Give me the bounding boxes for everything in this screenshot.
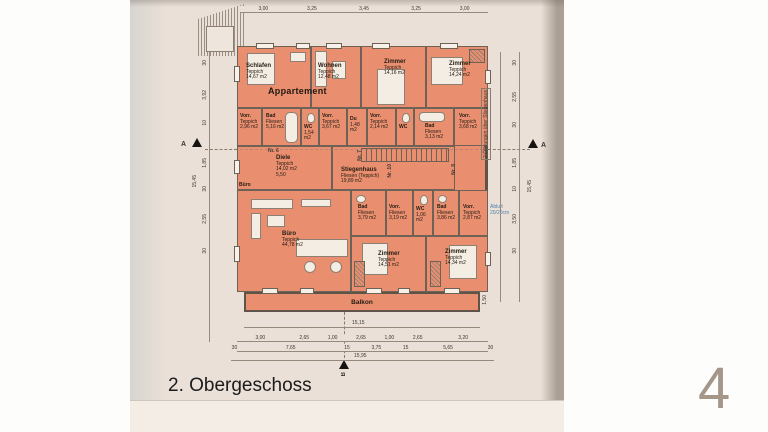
- closet-hatch: [354, 261, 365, 287]
- closet-hatch: [430, 261, 441, 287]
- window: [366, 288, 382, 294]
- door-number: Nr. 8: [452, 164, 457, 175]
- room-vorraum-5: Vorr. Fliesen 3,19 m2: [386, 190, 413, 236]
- room-area: 3,68 m2: [459, 125, 477, 131]
- dim-line-bottom-2: [237, 351, 488, 352]
- dim-value: 3,92: [203, 90, 208, 100]
- dim-line-right-outer: [519, 52, 520, 302]
- door-number: Nr. 10: [388, 164, 393, 178]
- room-area: 14,24 m2: [449, 73, 471, 79]
- room-vorraum-1: Vorr. Teppich 2,96 m2: [237, 108, 262, 146]
- scan-bottom-band: [130, 400, 564, 432]
- abluft-note: Abluft 20/20cm: [490, 205, 514, 216]
- window: [398, 288, 410, 294]
- section-marker-a-left: A: [181, 141, 186, 148]
- dim-bottom-total: 15,95: [352, 354, 369, 359]
- dim-value: 30: [513, 122, 518, 128]
- section-marker-a-right-icon: [528, 139, 538, 148]
- room-area: 2,96 m2: [240, 125, 258, 131]
- room-bad-1: Bad Fliesen 5,16 m2: [262, 108, 301, 146]
- room-area: 1,48 m2: [350, 123, 366, 134]
- room-bad-4: Bad Fliesen 3,86 m2: [433, 190, 459, 236]
- chair: [304, 261, 316, 273]
- room-area: 1,06 m2: [416, 213, 432, 224]
- dim-value: 3,75: [350, 345, 402, 351]
- dim-row-bottom-1: 3,00 2,65 1,00 2,65 1,00 2,65 3,20: [237, 335, 488, 341]
- sofa: [251, 213, 261, 239]
- balkon-label: Balkon: [351, 299, 373, 306]
- room-wc-3: WC 1,06 m2: [413, 190, 433, 236]
- sideboard: [301, 199, 331, 207]
- dim-value: 3,00: [237, 335, 284, 341]
- room-vorraum-2: Vorr. Teppich 3,67 m2: [319, 108, 347, 146]
- dim-line-right-inner: [500, 52, 501, 302]
- dim-value: 2,65: [397, 335, 438, 341]
- room-area: 44,78 m2: [282, 243, 303, 249]
- dim-value: 3,25: [391, 6, 442, 12]
- room-area: 3,19 m2: [389, 216, 407, 222]
- dim-value: 30: [203, 248, 208, 254]
- room-bad-3: Bad Fliesen 3,79 m2: [351, 190, 386, 236]
- dim-value: 30: [203, 186, 208, 192]
- dim-value: 10: [203, 120, 208, 126]
- room-schlafen: Schlafen Teppich 14,67 m2: [237, 46, 311, 108]
- window: [234, 160, 240, 174]
- room-area: 3,79 m2: [358, 216, 376, 222]
- dim-row-bottom-2: 30 7,65 15 3,75 15 5,65 30: [231, 345, 494, 351]
- section-marker-a-right: A: [541, 142, 546, 149]
- dim-balkon-width: 15,15: [350, 321, 367, 326]
- stairs: [361, 148, 449, 162]
- desk: [296, 239, 348, 257]
- dim-value: 3,50: [513, 214, 518, 224]
- room-vorraum-3: Vorr. Teppich 2,14 m2: [367, 108, 396, 146]
- window: [234, 246, 240, 262]
- dim-value: 30: [487, 345, 494, 351]
- dim-value: 7,65: [238, 345, 344, 351]
- window: [372, 43, 390, 49]
- room-area: 3,67 m2: [322, 125, 340, 131]
- dim-value: 2,65: [340, 335, 381, 341]
- room-area: 2,87 m2: [463, 216, 481, 222]
- dim-total: 15,45: [528, 180, 533, 193]
- balkon: Balkon: [244, 292, 480, 312]
- dim-line-bottom-total: [231, 360, 494, 361]
- sofa: [251, 199, 293, 209]
- window: [262, 288, 278, 294]
- room-area: 14,16 m2: [384, 71, 406, 77]
- room-zimmer-4: Zimmer Teppich 14,34 m2: [426, 236, 488, 292]
- window: [256, 43, 274, 49]
- coffee-table: [267, 215, 285, 227]
- roof-dormer: [206, 26, 234, 52]
- room-area: 14,34 m2: [445, 261, 467, 267]
- room-area: 2,14 m2: [370, 125, 388, 131]
- room-diele: Diele Teppich 14,02 m2 5,50: [237, 146, 332, 190]
- section-line-a-right: [488, 149, 530, 150]
- section-marker-b: B: [341, 372, 347, 376]
- chair: [330, 261, 342, 273]
- apartment-label: Appartement: [268, 86, 327, 96]
- drawing-title: 2. Obergeschoss: [168, 375, 312, 397]
- bathtub: [419, 112, 445, 122]
- dim-line-bottom-1: [237, 341, 488, 342]
- room-zimmer-3: Zimmer Teppich 14,51 m2: [351, 236, 426, 292]
- dim-balkon-depth: 1,50: [483, 295, 488, 305]
- room-buero: Büro Teppich 44,78 m2: [237, 190, 351, 292]
- window: [326, 43, 342, 49]
- scan-edge-right: [541, 0, 564, 432]
- washbasin: [438, 195, 447, 203]
- dim-value: 1,85: [203, 158, 208, 168]
- dim-line-left: [209, 52, 210, 342]
- room-wc-1: WC 1,54 m2: [301, 108, 319, 146]
- room-zimmer-1: Zimmer Teppich 14,16 m2: [361, 46, 426, 108]
- dim-value: 10: [513, 186, 518, 192]
- page-number: 4: [698, 360, 730, 418]
- room-zimmer-2: Zimmer Teppich 14,24 m2: [426, 46, 488, 108]
- buero-door-label: Büro: [239, 182, 251, 188]
- dim-value: 3,25: [287, 6, 338, 12]
- scan-edge-left: [130, 0, 166, 432]
- dim-value: 2,65: [284, 335, 325, 341]
- room-area: 1,54 m2: [304, 131, 318, 142]
- window: [296, 43, 310, 49]
- dim-line-top: [240, 12, 488, 13]
- room-name: WC: [399, 125, 407, 131]
- room-area: 19,89 m2: [341, 179, 379, 185]
- room-vorraum-6: Vorr. Teppich 2,87 m2: [459, 190, 488, 236]
- wardrobe: [290, 52, 306, 62]
- dim-value: 30: [203, 60, 208, 66]
- dim-value: 3,20: [438, 335, 488, 341]
- room-extra-dim: 5,50: [276, 173, 297, 179]
- room-area: 12,48 m2: [318, 75, 342, 81]
- dim-value: 1,00: [382, 335, 398, 341]
- floor-plan-scan-page: 3,00 3,25 3,45 3,25 3,00 Schlafen Teppic…: [0, 0, 768, 432]
- dim-value: 1,85: [513, 158, 518, 168]
- toilet: [420, 195, 428, 205]
- toilet: [402, 113, 410, 123]
- window: [440, 43, 458, 49]
- shaft-hatch: [469, 49, 485, 63]
- room-dusche: Du 1,48 m2: [347, 108, 367, 146]
- dim-value: 3,45: [337, 6, 391, 12]
- window: [300, 288, 314, 294]
- dim-value: 30: [513, 248, 518, 254]
- dim-value: 1,00: [325, 335, 341, 341]
- window: [485, 70, 491, 84]
- section-line-a-inner: [240, 149, 488, 150]
- room-wohnen: Wohnen Teppich 12,48 m2: [311, 46, 361, 108]
- dim-total: 15,45: [193, 175, 198, 188]
- dim-value: 2,55: [203, 214, 208, 224]
- dim-value: 5,65: [409, 345, 487, 351]
- section-marker-a-left-icon: [192, 138, 202, 147]
- room-area: 5,16 m2: [266, 125, 284, 131]
- window: [485, 252, 491, 266]
- room-bad-2: Bad Fliesen 3,13 m2: [414, 108, 454, 146]
- room-area: 3,86 m2: [437, 216, 455, 222]
- dim-value: 3,00: [441, 6, 488, 12]
- room-area: 14,51 m2: [378, 263, 400, 269]
- section-marker-b-icon: [339, 360, 349, 369]
- dim-value: 15: [402, 345, 409, 351]
- bathtub: [285, 112, 298, 143]
- dim-value: 30: [513, 60, 518, 66]
- room-area: 14,67 m2: [246, 75, 271, 81]
- room-stiegenhaus: Stiegenhaus Fliesen (Teppich) 19,89 m2: [332, 146, 455, 190]
- dim-row-top: 3,00 3,25 3,45 3,25 3,00: [240, 6, 488, 12]
- window: [234, 66, 240, 82]
- room-wc-2: WC: [396, 108, 414, 146]
- dim-value: 15: [344, 345, 351, 351]
- dim-line-balkon-width: [244, 327, 480, 328]
- door-number: Nr. 7: [358, 150, 363, 161]
- dim-value: 2,55: [513, 92, 518, 102]
- washbasin: [356, 195, 366, 203]
- dim-value: 30: [231, 345, 238, 351]
- dim-value: 3,00: [240, 6, 287, 12]
- window: [444, 288, 460, 294]
- stiegenhaus-note: 2 Öffnungen über Stiegenhaus: [481, 88, 491, 160]
- room-area: 3,13 m2: [425, 135, 443, 141]
- toilet: [307, 113, 315, 123]
